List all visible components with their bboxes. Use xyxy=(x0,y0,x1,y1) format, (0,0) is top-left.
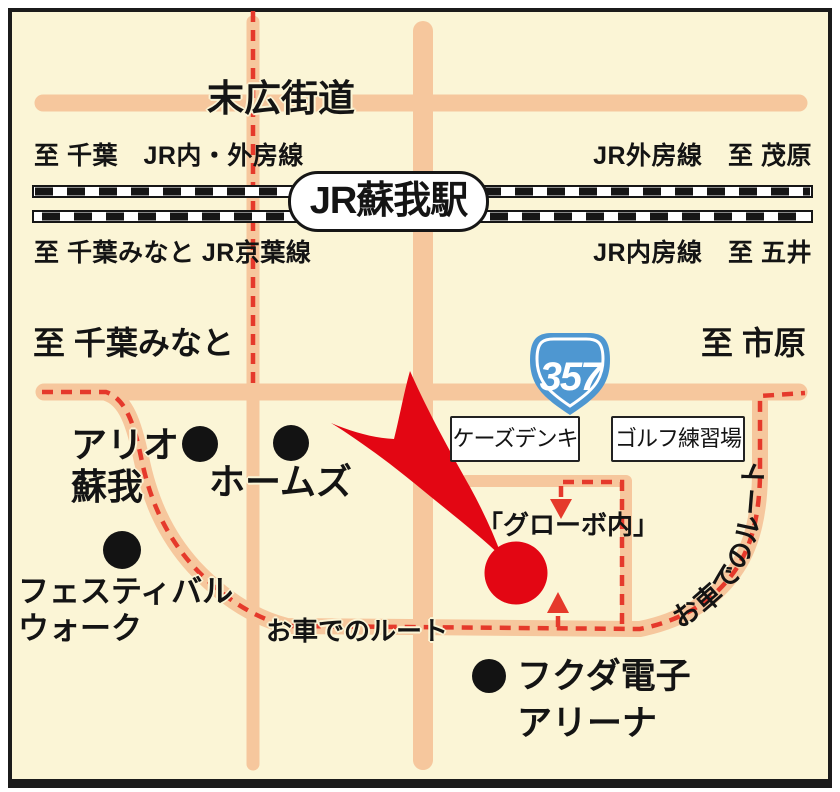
landmark-dot-fukuda xyxy=(472,659,506,693)
rail-label-bottom-left: 至 千葉みなと JR京葉線 xyxy=(34,239,311,269)
car-route-dash-globo xyxy=(563,482,622,627)
landmark-box-ks-denki: ケーズデンキ xyxy=(450,416,580,462)
landmark-label-homes: ホームズ xyxy=(209,461,352,503)
route-shield-number: 357 xyxy=(540,355,604,399)
landmark-dot-homes xyxy=(273,425,309,461)
landmark-label-festival-walk: フェスティバル ウォーク xyxy=(18,574,233,647)
access-map: 357 お車でのルート 末広街道 至 千葉 JR内・外房線 JR外房線 至 茂原… xyxy=(0,0,840,792)
rail-label-top-right: JR外房線 至 茂原 xyxy=(593,142,812,172)
rail-label-bottom-right: JR内房線 至 五井 xyxy=(593,239,812,269)
direction-label-chibaminato: 至 千葉みなと xyxy=(33,325,234,363)
destination-marker xyxy=(485,542,548,605)
landmark-dot-ario xyxy=(182,426,218,462)
landmark-label-globo: 「グローボ内」 xyxy=(477,510,659,541)
route-357-shield: 357 xyxy=(530,333,610,415)
direction-label-ichihara: 至 市原 xyxy=(701,325,806,363)
car-route-curve-label: お車でのルート xyxy=(667,458,769,634)
landmark-dot-festival xyxy=(103,531,141,569)
car-route-bottom-label: お車でのルート xyxy=(266,616,448,647)
landmark-label-ario-soga: アリオ 蘇我 xyxy=(71,424,179,509)
landmark-label-fukuda-arena: フクダ電子 アリーナ xyxy=(517,653,691,748)
road-label-suehiro-kaido: 末広街道 xyxy=(207,77,355,121)
entry-arrow-up-icon xyxy=(547,592,569,613)
rail-label-top-left: 至 千葉 JR内・外房線 xyxy=(34,142,304,172)
station-badge: JR蘇我駅 xyxy=(288,171,489,232)
landmark-box-golf-range: ゴルフ練習場 xyxy=(611,416,745,462)
map-canvas: 357 お車でのルート xyxy=(0,0,840,792)
